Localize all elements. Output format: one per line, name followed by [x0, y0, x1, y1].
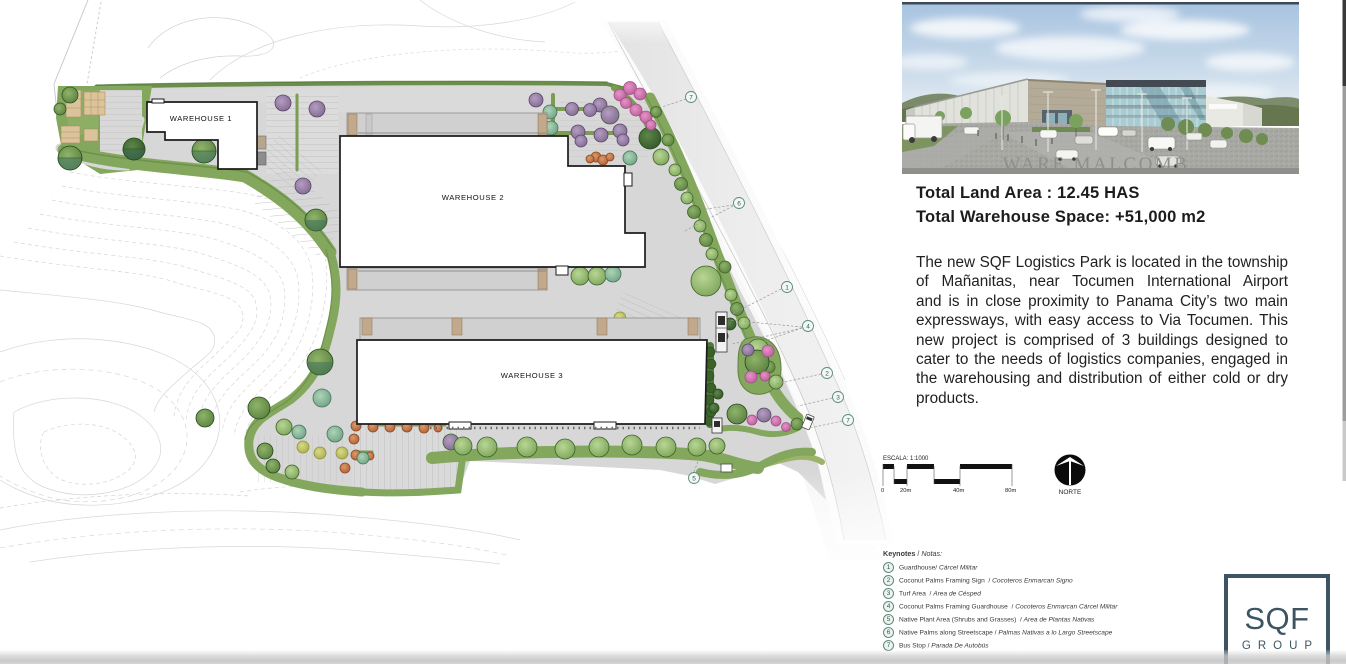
svg-text:WAREHOUSE 2: WAREHOUSE 2	[442, 193, 504, 202]
svg-text:3: 3	[836, 395, 840, 402]
svg-text:7: 7	[846, 418, 850, 425]
svg-text:4: 4	[806, 324, 810, 331]
svg-text:WARE MALCOMB: WARE MALCOMB	[1003, 154, 1190, 175]
svg-text:40m: 40m	[953, 488, 964, 494]
svg-text:80m: 80m	[1005, 488, 1016, 494]
svg-text:2: 2	[825, 371, 829, 378]
svg-text:WAREHOUSE 1: WAREHOUSE 1	[170, 114, 232, 123]
svg-text:6: 6	[737, 201, 741, 208]
svg-text:ESCALA: 1:1000: ESCALA: 1:1000	[883, 456, 929, 462]
svg-text:7: 7	[689, 95, 693, 102]
svg-text:1: 1	[785, 285, 789, 292]
svg-text:WAREHOUSE 3: WAREHOUSE 3	[501, 371, 563, 380]
svg-text:20m: 20m	[900, 488, 911, 494]
svg-text:NORTE: NORTE	[1059, 489, 1082, 496]
svg-text:0: 0	[881, 488, 884, 494]
svg-text:5: 5	[692, 476, 696, 483]
